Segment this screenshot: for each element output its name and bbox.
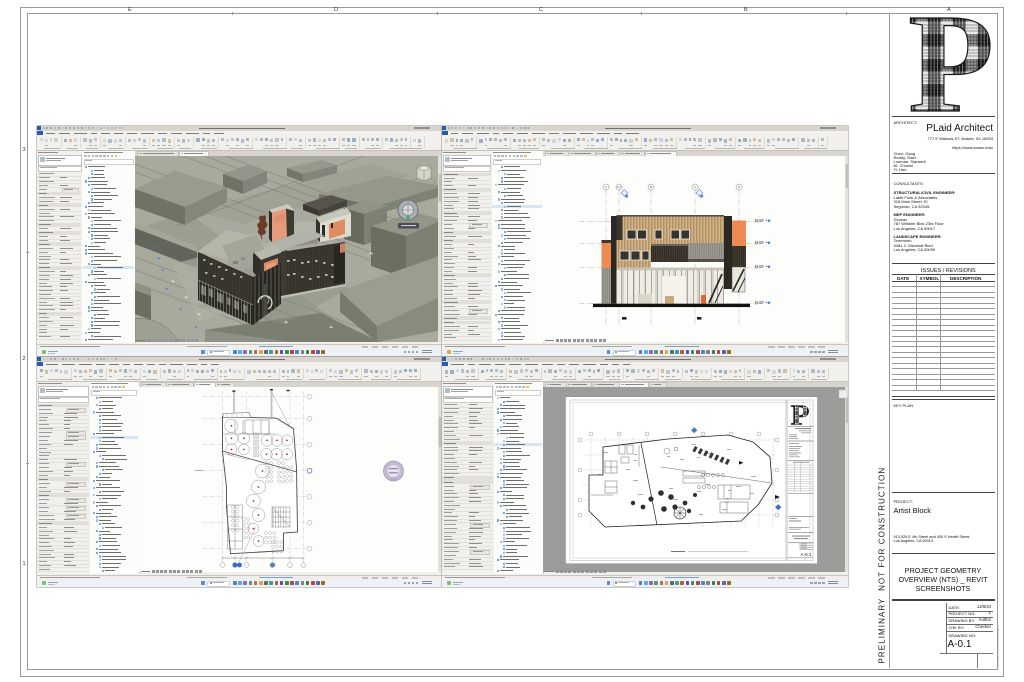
svg-text:B: B (650, 185, 652, 189)
svg-text:D: D (738, 185, 740, 189)
svg-text:P: P (908, 9, 994, 115)
svg-text:C: C (694, 185, 696, 189)
svg-text:A.1: A.1 (617, 185, 621, 189)
svg-text:P: P (790, 401, 809, 432)
svg-text:A: A (605, 185, 607, 189)
svg-text:A-0.1: A-0.1 (800, 552, 811, 557)
